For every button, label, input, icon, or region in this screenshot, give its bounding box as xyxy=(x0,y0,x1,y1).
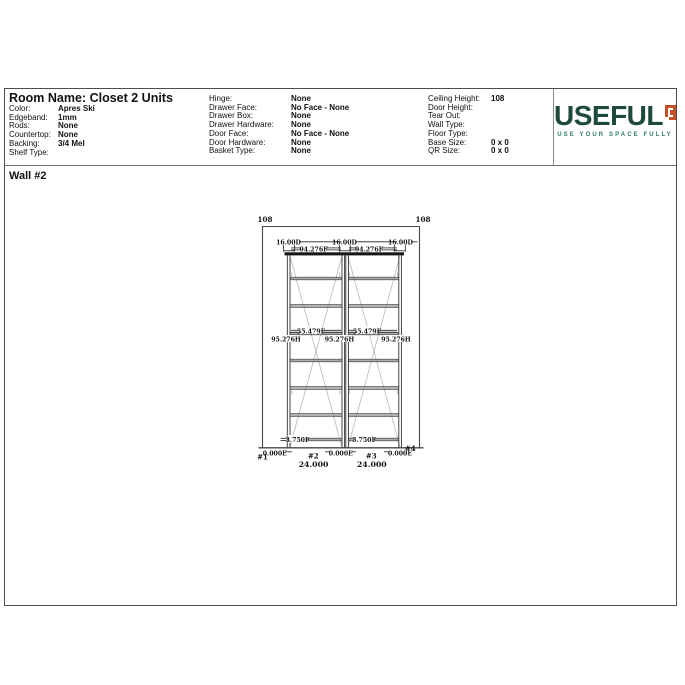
panel-number-label: #1 xyxy=(257,452,268,461)
label-halos xyxy=(274,327,408,443)
depth-label: 16.00D xyxy=(332,239,357,246)
panel-height-label: 95.276H xyxy=(381,336,411,343)
depth-label: 16.00D xyxy=(276,239,301,246)
depth-label: 16.00D xyxy=(388,239,413,246)
wall-elevation-drawing: 108 108 16.00D 16.00D 16.00D 94.276F 94.… xyxy=(0,0,685,685)
unit-total-width-label: 24.000 xyxy=(357,460,387,469)
toe-kick-label: 3.750F xyxy=(352,437,376,444)
panel-number-label: #4 xyxy=(405,444,416,453)
unit-width-label: 94.276F xyxy=(355,246,384,253)
unit-width-label: 94.276F xyxy=(299,246,328,253)
panel-height-label: 95.276H xyxy=(271,336,301,343)
toe-kick-label: 3.750F xyxy=(286,437,310,444)
shelf-dim-label: 55.479F xyxy=(353,329,382,336)
ceiling-height-label-left: 108 xyxy=(257,215,272,224)
vertical-panels xyxy=(287,256,401,448)
panel-height-label: 95.276H xyxy=(325,336,355,343)
edge-label: 0.000E xyxy=(329,450,353,457)
ceiling-height-label-right: 108 xyxy=(415,215,430,224)
shelf-dim-label: 55.479F xyxy=(297,329,326,336)
unit-total-width-label: 24.000 xyxy=(299,460,329,469)
